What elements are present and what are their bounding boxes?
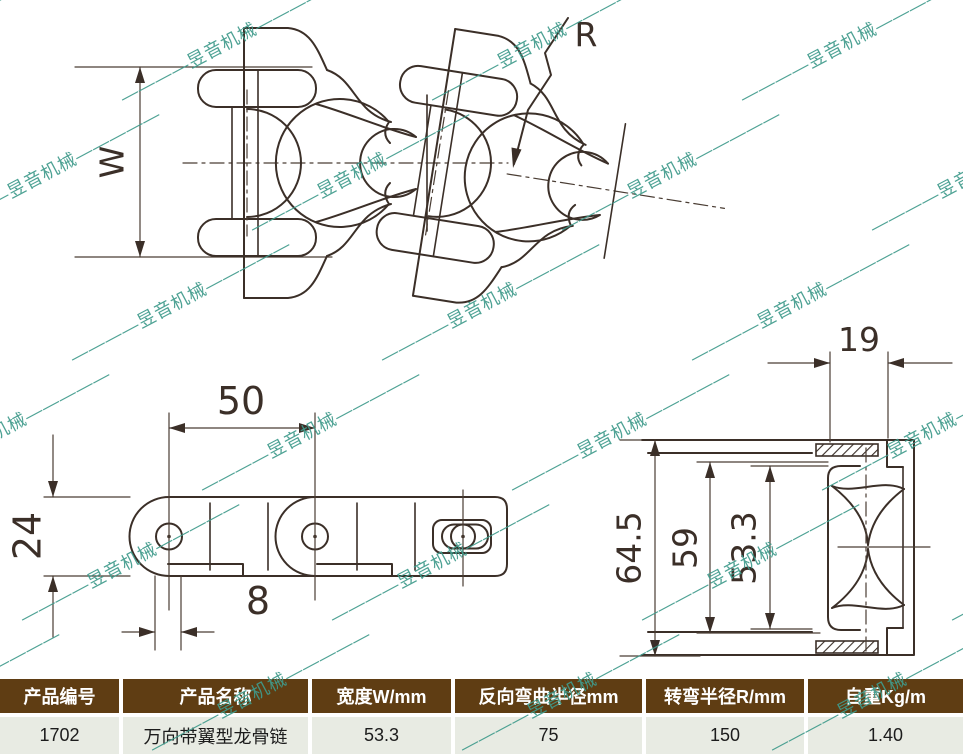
- header-width: 宽度W/mm: [312, 679, 451, 713]
- table-data-row: 1702 万向带翼型龙骨链 53.3 75 150 1.40: [0, 717, 963, 754]
- dim-outer-height: 64.5: [610, 511, 649, 584]
- header-product-no: 产品编号: [0, 679, 119, 713]
- side-view: 50 24 8: [6, 379, 508, 650]
- cell-product-name: 万向带翼型龙骨链: [123, 717, 308, 754]
- cell-width: 53.3: [312, 717, 451, 754]
- dim-inner-height: 53.3: [725, 511, 764, 584]
- dim-radius-label: R: [575, 15, 598, 54]
- header-product-name: 产品名称: [123, 679, 308, 713]
- header-reverse-radius: 反向弯曲半径mm: [455, 679, 642, 713]
- cell-product-no: 1702: [0, 717, 119, 754]
- header-turn-radius: 转弯半径R/mm: [646, 679, 804, 713]
- header-weight: 自重Kg/m: [808, 679, 963, 713]
- table-header-row: 产品编号 产品名称 宽度W/mm 反向弯曲半径mm 转弯半径R/mm 自重Kg/…: [0, 679, 963, 713]
- product-spec-table: 产品编号 产品名称 宽度W/mm 反向弯曲半径mm 转弯半径R/mm 自重Kg/…: [0, 676, 963, 755]
- dim-wing-thickness: 19: [838, 320, 880, 359]
- cell-turn-radius: 150: [646, 717, 804, 754]
- section-view: 19 64.5 59 53.3: [610, 320, 953, 656]
- dim-tab-width: 8: [246, 579, 270, 623]
- dim-width-label: W: [93, 146, 132, 179]
- dim-pitch: 50: [217, 379, 265, 423]
- dim-middle-height: 59: [666, 527, 705, 569]
- top-view: W R: [75, 15, 746, 342]
- dim-height: 24: [6, 512, 50, 560]
- technical-drawing: W R: [0, 0, 963, 676]
- cell-reverse-radius: 75: [455, 717, 642, 754]
- page: W R: [0, 0, 963, 755]
- cell-weight: 1.40: [808, 717, 963, 754]
